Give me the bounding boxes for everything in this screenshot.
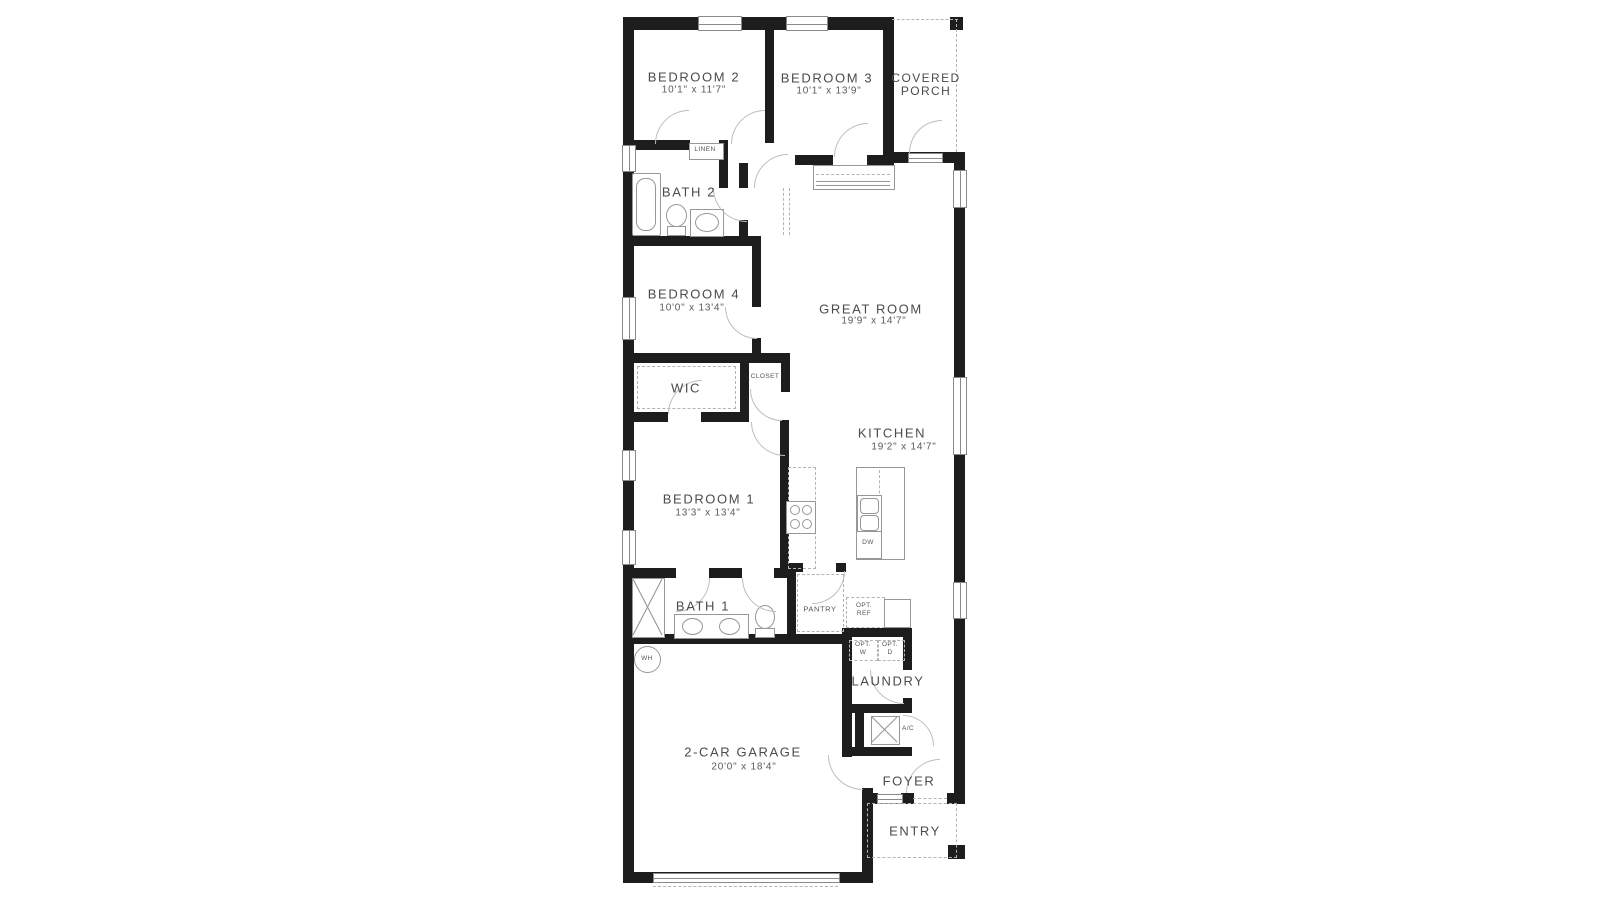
bed3-closet-slider-line-1 xyxy=(816,181,890,182)
cased-opening-dash-2 xyxy=(789,188,790,235)
bath1-sink-2 xyxy=(719,618,740,635)
wall-bath2-bottom xyxy=(623,236,761,246)
label-wic: WIC xyxy=(671,381,701,396)
floor-plan: BEDROOM 2 10'1" x 11'7" BEDROOM 3 10'1" … xyxy=(0,0,1600,900)
label-pantry: PANTRY xyxy=(803,605,836,614)
label-bath2: BATH 2 xyxy=(662,185,716,200)
window-greatroom-right-2 xyxy=(953,377,967,455)
label-kitchen: KITCHEN xyxy=(858,426,926,441)
label-laundry: LAUNDRY xyxy=(851,674,924,689)
door-arc-bath1-right xyxy=(742,578,776,612)
label-opt-washer: OPT. W xyxy=(855,641,871,657)
label-dw: DW xyxy=(862,539,874,547)
bed3-closet xyxy=(813,165,895,190)
stove-burner-4 xyxy=(802,519,812,529)
island-sink-bowl-1 xyxy=(860,498,879,514)
kitchen-cabinet-box xyxy=(884,599,911,628)
label-foyer: FOYER xyxy=(883,774,936,789)
dims-kitchen: 19'2" x 14'7" xyxy=(871,442,936,453)
window-bed2-top xyxy=(698,16,742,31)
porch-door-threshold xyxy=(908,153,943,163)
label-great-room: GREAT ROOM xyxy=(819,302,923,317)
door-arc-bedroom2 xyxy=(731,110,765,144)
window-bed4-left xyxy=(622,297,636,340)
window-kitchen-right xyxy=(953,582,967,619)
dims-great-room: 19'9" x 14'7" xyxy=(841,316,906,327)
label-bedroom1: BEDROOM 1 xyxy=(663,492,755,507)
bath1-shower-x-mark xyxy=(632,578,663,636)
bed3-closet-shelf-dashed xyxy=(816,174,890,175)
stove-burner-1 xyxy=(790,505,800,515)
wall-pantry-left xyxy=(787,563,796,643)
bath1-sink-1 xyxy=(682,618,703,635)
dims-bedroom4: 10'0" x 13'4" xyxy=(659,303,724,314)
bath2-tub-inner xyxy=(636,178,656,231)
door-arc-bed2-closet xyxy=(655,110,689,144)
wall-bed3-bottom-r xyxy=(867,155,894,165)
dims-garage: 20'0" x 18'4" xyxy=(711,762,776,773)
wall-wic-bottom-l xyxy=(623,412,668,422)
stove-burner-2 xyxy=(802,505,812,515)
wall-bed2-bed3 xyxy=(765,17,774,143)
cased-opening-dash-1 xyxy=(783,188,784,235)
wall-top xyxy=(623,17,883,30)
wall-bed1-bottom-m xyxy=(709,568,742,578)
bath2-toilet-tank xyxy=(667,226,686,236)
bath1-toilet-tank xyxy=(755,628,775,638)
label-bedroom2: BEDROOM 2 xyxy=(648,70,740,85)
door-arc-bedroom4 xyxy=(725,307,757,339)
wall-bed4-bottom xyxy=(623,353,753,363)
label-linen: LINEN xyxy=(694,146,715,154)
door-arc-hall-closet xyxy=(750,389,782,421)
front-door-threshold-dashed xyxy=(913,798,947,799)
dims-bedroom2: 10'1" x 11'7" xyxy=(662,85,727,96)
label-ac: A/C xyxy=(902,725,914,733)
door-arc-porch xyxy=(909,120,942,153)
label-closet: CLOSET xyxy=(751,373,779,381)
bath2-sink xyxy=(695,213,719,232)
window-bed3-top xyxy=(786,16,828,31)
label-covered-porch: COVERED PORCH xyxy=(891,72,960,98)
window-bed1-left-2 xyxy=(622,530,636,565)
wall-closet-right xyxy=(781,362,790,392)
label-bedroom3: BEDROOM 3 xyxy=(781,71,873,86)
wall-bath2-right-u xyxy=(739,163,748,188)
door-arc-bedroom1 xyxy=(751,422,785,456)
wall-ac-left xyxy=(855,713,864,751)
window-bed1-left-1 xyxy=(622,450,636,481)
window-greatroom-right-1 xyxy=(953,170,967,208)
bed3-closet-slider-line-2 xyxy=(816,185,890,186)
label-entry: ENTRY xyxy=(889,824,941,839)
label-wh: WH xyxy=(641,655,653,663)
stove-burner-3 xyxy=(790,519,800,529)
window-bath2-left xyxy=(622,145,636,172)
dims-bedroom1: 13'3" x 13'4" xyxy=(675,508,740,519)
garage-door-dashed xyxy=(653,886,838,887)
wall-bed4-right-u xyxy=(752,236,761,307)
wall-bed3-bottom-l xyxy=(795,155,833,165)
label-opt-ref: OPT. REF xyxy=(856,602,872,618)
wall-bed1-bottom-l xyxy=(623,568,676,578)
wall-laundry-top xyxy=(842,628,912,637)
wall-right xyxy=(954,152,965,803)
label-bath1: BATH 1 xyxy=(676,599,730,614)
wall-laundry-bottom xyxy=(842,704,912,713)
wall-wic-bottom-r xyxy=(701,412,749,422)
label-bedroom4: BEDROOM 4 xyxy=(648,287,740,302)
bath2-toilet-bowl xyxy=(666,204,687,227)
label-opt-dryer: OPT. D xyxy=(882,641,898,657)
dims-bedroom3: 10'1" x 13'9" xyxy=(796,86,861,97)
garage-door xyxy=(653,873,840,883)
porch-top-dashed xyxy=(892,19,958,20)
island-sink-bowl-2 xyxy=(860,515,879,531)
door-arc-garage-entry xyxy=(828,755,863,790)
ac-x-mark xyxy=(871,716,898,743)
door-arc-hall xyxy=(754,154,788,188)
label-garage: 2-CAR GARAGE xyxy=(684,745,801,760)
door-arc-bedroom3 xyxy=(834,123,868,157)
